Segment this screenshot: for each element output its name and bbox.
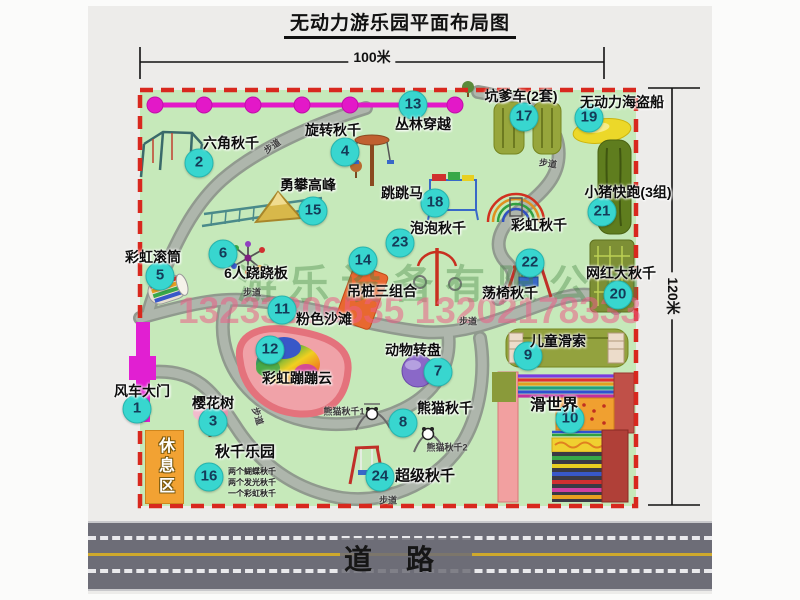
attraction-label: 旋转秋千 bbox=[305, 120, 361, 140]
attraction-label: 风车大门 bbox=[114, 381, 170, 401]
attraction-label: 泡泡秋千 bbox=[410, 218, 466, 238]
attraction-label: 无动力海盗船 bbox=[580, 92, 664, 112]
attraction-badge-17: 17 bbox=[510, 103, 539, 132]
screenshot-root: 无动力游乐园平面布局图 bbox=[0, 0, 800, 600]
swing-park-note: 两个发光秋千 bbox=[228, 477, 276, 488]
attraction-badge-16: 16 bbox=[195, 463, 224, 492]
attraction-label: 儿童滑索 bbox=[530, 331, 586, 351]
height-dimension-label: 120米 bbox=[663, 272, 683, 319]
attraction-badge-20: 20 bbox=[604, 281, 633, 310]
attraction-badge-4: 4 bbox=[331, 138, 360, 167]
attraction-badge-8: 8 bbox=[389, 409, 418, 438]
sub-label: 熊猫秋千1 bbox=[323, 405, 364, 418]
attraction-badge-14: 14 bbox=[349, 247, 378, 276]
attraction-label: 6人跷跷板 bbox=[224, 263, 288, 283]
swing-park-note: 一个彩虹秋千 bbox=[228, 488, 276, 499]
attraction-label: 荡椅秋千 bbox=[482, 283, 538, 303]
attraction-badge-24: 24 bbox=[366, 463, 395, 492]
attraction-label: 跳跳马 bbox=[381, 183, 423, 203]
attraction-label: 彩虹秋千 bbox=[511, 215, 567, 235]
attraction-label: 超级秋千 bbox=[395, 465, 455, 486]
attraction-label: 粉色沙滩 bbox=[296, 309, 352, 329]
rest-area-box: 休息区 bbox=[145, 430, 184, 504]
attraction-label: 六角秋千 bbox=[203, 133, 259, 153]
path-label: 步道 bbox=[379, 494, 397, 507]
width-dimension-label: 100米 bbox=[348, 47, 395, 67]
road-label: 道路 bbox=[340, 538, 472, 578]
attraction-label: 秋千乐园 bbox=[215, 441, 275, 462]
attraction-label: 彩虹蹦蹦云 bbox=[262, 368, 332, 388]
path-label: 步道 bbox=[538, 155, 558, 170]
attraction-label: 滑世界 bbox=[530, 391, 578, 415]
attraction-label: 动物转盘 bbox=[385, 340, 441, 360]
attraction-label: 彩虹滚筒 bbox=[125, 247, 181, 267]
attraction-label: 吊桩三组合 bbox=[347, 281, 417, 301]
attraction-badge-15: 15 bbox=[299, 197, 328, 226]
attraction-badge-18: 18 bbox=[421, 189, 450, 218]
path-label: 步道 bbox=[243, 286, 261, 299]
attraction-label: 丛林穿越 bbox=[395, 114, 451, 134]
sub-label: 熊猫秋千2 bbox=[426, 441, 467, 454]
attraction-label: 勇攀高峰 bbox=[280, 175, 336, 195]
attraction-badge-7: 7 bbox=[424, 358, 453, 387]
attraction-label: 樱花树 bbox=[192, 393, 234, 413]
path-label: 步道 bbox=[459, 315, 477, 328]
swing-park-note: 两个蝴蝶秋千 bbox=[228, 466, 276, 477]
attraction-badge-12: 12 bbox=[256, 336, 285, 365]
attraction-label: 小猪快跑(3组) bbox=[584, 182, 671, 202]
attraction-label: 网红大秋千 bbox=[586, 263, 656, 283]
attraction-badge-22: 22 bbox=[516, 249, 545, 278]
attraction-label: 熊猫秋千 bbox=[417, 398, 473, 418]
road: 道路 bbox=[88, 521, 712, 591]
attraction-badge-11: 11 bbox=[268, 296, 297, 325]
attraction-label: 坑爹车(2套) bbox=[484, 86, 557, 106]
